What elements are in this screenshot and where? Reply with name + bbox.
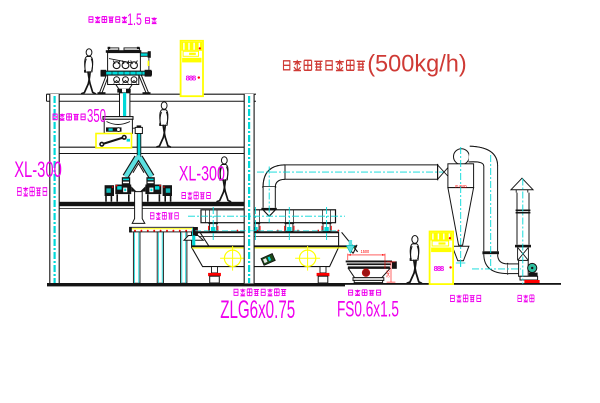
svg-text:XL-300: XL-300 [14, 157, 62, 182]
svg-text:(500kg/h): (500kg/h) [367, 51, 467, 78]
svg-text:1500: 1500 [361, 249, 370, 254]
svg-text:F480: F480 [455, 184, 467, 190]
svg-text:888: 888 [434, 264, 444, 273]
svg-text:FS0.6x1.5: FS0.6x1.5 [337, 297, 399, 322]
svg-text:345: 345 [386, 270, 391, 278]
svg-text:888: 888 [186, 73, 196, 82]
svg-text:XL-300: XL-300 [179, 163, 225, 186]
svg-text:1.5: 1.5 [127, 11, 142, 29]
svg-text:350: 350 [87, 105, 106, 126]
svg-text:ZLG6x0.75: ZLG6x0.75 [220, 296, 295, 324]
